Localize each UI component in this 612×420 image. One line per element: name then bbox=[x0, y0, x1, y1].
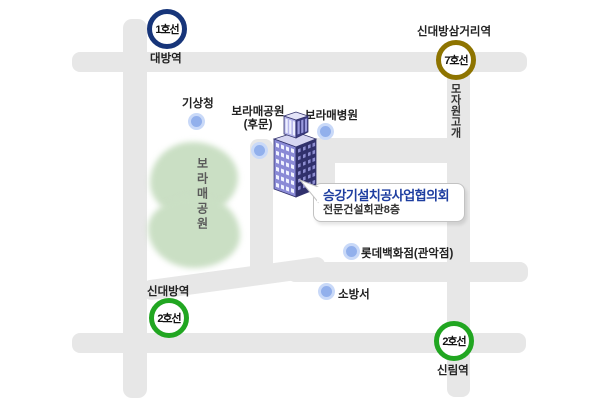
poi-dot-fire-station bbox=[318, 283, 335, 300]
poi-dot-park-rear-gate bbox=[251, 142, 268, 159]
station-label-sindaebang-samgeori: 신대방삼거리역 bbox=[417, 23, 491, 39]
station-badge-line7: 7호선 bbox=[436, 40, 476, 80]
station-label-sillim: 신림역 bbox=[437, 362, 469, 378]
poi-dot-weather-office bbox=[188, 113, 205, 130]
road-label-mojawon-gogae: 모자원고개 bbox=[447, 83, 463, 138]
destination-subtitle: 전문건설회관8층 bbox=[323, 204, 464, 217]
road-lotte-horizontal bbox=[287, 262, 528, 282]
station-label-sindaebang: 신대방역 bbox=[147, 283, 189, 299]
poi-label-weather-office: 기상청 bbox=[182, 95, 214, 111]
station-badge-line1: 1호선 bbox=[147, 9, 187, 49]
line1-badge-text: 1호선 bbox=[155, 21, 178, 37]
line2-badge-text: 2호선 bbox=[442, 333, 465, 349]
park-gate-line2: (후문) bbox=[244, 119, 273, 131]
poi-label-lotte-department: 롯데백화점(관악점) bbox=[361, 245, 453, 261]
station-badge-line2-sindaebang: 2호선 bbox=[149, 298, 189, 338]
poi-label-fire-station: 소방서 bbox=[338, 286, 370, 302]
location-map: 보라매공원 1호선 7호선 2호선 2호선 대방역 신대방삼거리역 신대방역 신… bbox=[0, 0, 612, 420]
destination-callout: 승강기설치공사업협의회 전문건설회관8층 bbox=[313, 183, 465, 222]
destination-title: 승강기설치공사업협의회 bbox=[323, 187, 464, 204]
poi-dot-boramae-hospital bbox=[317, 123, 334, 140]
station-badge-line2-sillim: 2호선 bbox=[434, 321, 474, 361]
station-label-daebang: 대방역 bbox=[150, 50, 182, 66]
poi-dot-lotte-department bbox=[343, 243, 360, 260]
line7-badge-text: 7호선 bbox=[444, 52, 467, 68]
callout-tail-pointer bbox=[298, 178, 320, 204]
park-label: 보라매공원 bbox=[194, 157, 211, 232]
line2-badge-text: 2호선 bbox=[157, 310, 180, 326]
